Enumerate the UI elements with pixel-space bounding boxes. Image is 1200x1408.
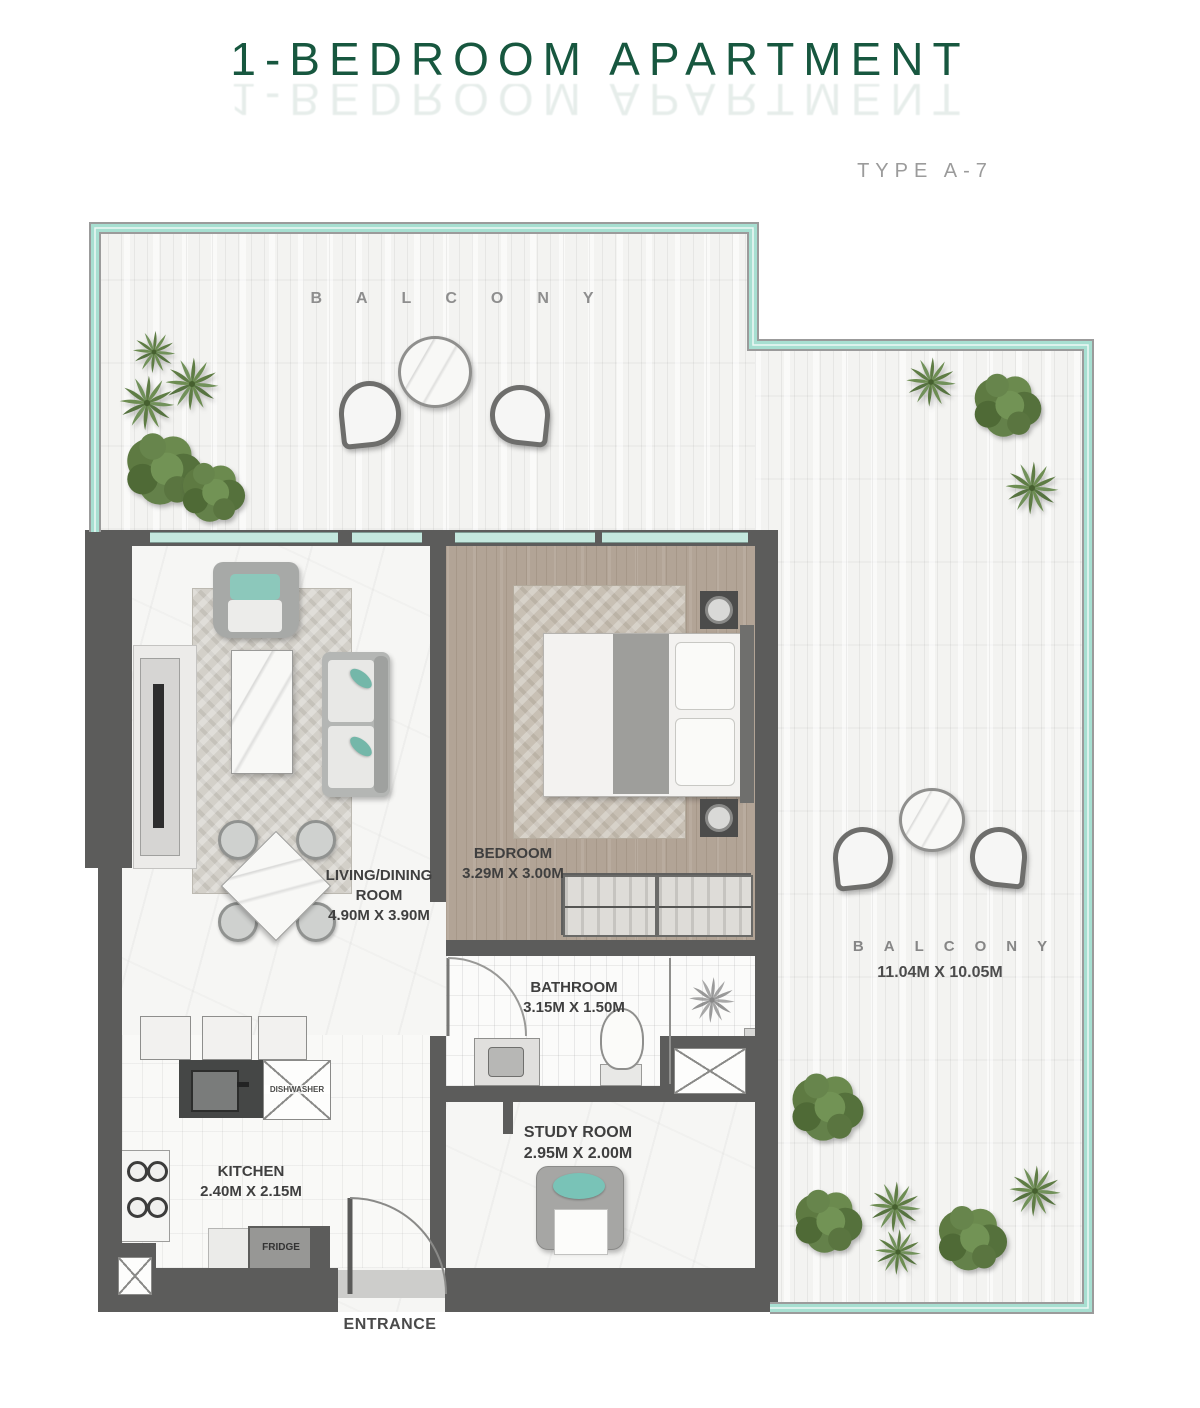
kitchen-sink bbox=[191, 1070, 239, 1112]
balcony-top-label: BALCONY bbox=[235, 290, 669, 308]
armchair-cushion bbox=[230, 574, 280, 600]
floor-plan-page: 1-BEDROOM APARTMENT 1-BEDROOM APARTMENT … bbox=[0, 0, 1200, 1408]
plant-palm bbox=[903, 354, 959, 410]
wardrobe-panel bbox=[657, 875, 753, 937]
study-room-name: STUDY ROOM bbox=[524, 1124, 632, 1141]
wall-cabinet bbox=[140, 1016, 191, 1060]
nightstand bbox=[700, 799, 738, 837]
wardrobe bbox=[561, 873, 751, 935]
living-dining-label: LIVING/DINING ROOM 4.90M X 3.90M bbox=[323, 866, 435, 926]
plant-palm bbox=[1002, 458, 1062, 518]
lamp bbox=[705, 804, 733, 832]
window-bedroom-2 bbox=[602, 532, 748, 543]
page-title: 1-BEDROOM APARTMENT bbox=[0, 32, 1200, 86]
bed-pillow bbox=[675, 718, 735, 786]
sink bbox=[488, 1047, 524, 1077]
dishwasher: DISHWASHER bbox=[263, 1060, 331, 1120]
kitchen-dimensions: 2.40M X 2.15M bbox=[200, 1183, 302, 1200]
page-title-reflection: 1-BEDROOM APARTMENT bbox=[0, 84, 1200, 126]
armchair-seat bbox=[228, 600, 282, 632]
wall-left-upper bbox=[85, 530, 132, 868]
window-living-door bbox=[352, 532, 422, 543]
living-dining-dimensions: 4.90M X 3.90M bbox=[328, 907, 430, 924]
vanity bbox=[474, 1038, 540, 1086]
window-living bbox=[150, 532, 338, 543]
desk bbox=[536, 1166, 624, 1250]
bed-pillow bbox=[675, 642, 735, 710]
tv-screen bbox=[153, 684, 164, 828]
wall-divider-lower bbox=[430, 1036, 446, 1268]
entrance-label: ENTRANCE bbox=[338, 1314, 442, 1335]
service-shaft bbox=[674, 1048, 746, 1094]
bed-blanket bbox=[613, 634, 669, 794]
dishwasher-label: DISHWASHER bbox=[264, 1085, 330, 1094]
plant-bush bbox=[780, 1060, 876, 1158]
kitchen-label: KITCHEN 2.40M X 2.15M bbox=[200, 1162, 302, 1202]
wall-bedroom-bathroom bbox=[446, 940, 758, 956]
kitchen-sink-unit bbox=[179, 1060, 263, 1118]
toilet bbox=[596, 1008, 644, 1086]
bedroom-label: BEDROOM 3.29M X 3.00M bbox=[446, 844, 580, 884]
study-room-label: STUDY ROOM 2.95M X 2.00M bbox=[498, 1122, 658, 1165]
burner bbox=[127, 1161, 148, 1182]
plant-palm bbox=[1004, 1162, 1066, 1220]
counter bbox=[208, 1228, 250, 1270]
desk-chair bbox=[553, 1173, 605, 1199]
bathroom-dimensions: 3.15M X 1.50M bbox=[523, 999, 625, 1016]
bathroom-name: BATHROOM bbox=[530, 979, 617, 996]
faucet bbox=[237, 1082, 249, 1087]
bedroom-name: BEDROOM bbox=[474, 845, 552, 862]
bedroom-dimensions: 3.29M X 3.00M bbox=[462, 865, 564, 882]
wardrobe-panel bbox=[563, 875, 657, 937]
armchair bbox=[213, 562, 299, 638]
lamp bbox=[705, 596, 733, 624]
balcony-table-right bbox=[899, 788, 965, 852]
burner bbox=[127, 1197, 148, 1218]
burner bbox=[147, 1197, 168, 1218]
burner bbox=[147, 1161, 168, 1182]
wall-bottom-right bbox=[445, 1268, 758, 1312]
wall-right bbox=[755, 530, 778, 1312]
dining-chair bbox=[296, 820, 336, 860]
nightstand bbox=[700, 591, 738, 629]
entrance-threshold bbox=[338, 1270, 445, 1298]
living-dining-line1: LIVING/DINING bbox=[326, 867, 433, 884]
fridge-label: FRIDGE bbox=[250, 1242, 312, 1253]
bathroom-label: BATHROOM 3.15M X 1.50M bbox=[498, 978, 650, 1018]
bed bbox=[543, 633, 742, 797]
balcony-table bbox=[398, 336, 472, 408]
wall-cabinet bbox=[202, 1016, 252, 1060]
coffee-table bbox=[231, 650, 293, 774]
plan-type-label: TYPE A-7 bbox=[830, 160, 1020, 183]
plant-bush bbox=[168, 452, 260, 536]
service-shaft-corner bbox=[118, 1257, 152, 1295]
sofa bbox=[322, 652, 390, 797]
plant-palm bbox=[872, 1226, 924, 1278]
stove bbox=[121, 1150, 170, 1242]
fridge: FRIDGE bbox=[248, 1226, 314, 1272]
plant-bush bbox=[784, 1178, 874, 1268]
balcony-right-label: BALCONY bbox=[810, 938, 1090, 955]
wall-cabinet bbox=[258, 1016, 307, 1060]
wall-stub-fridge bbox=[310, 1226, 330, 1270]
wall-divider-upper bbox=[430, 530, 446, 902]
plant-bush bbox=[962, 362, 1054, 452]
desk-paper bbox=[554, 1209, 608, 1255]
study-room-dimensions: 2.95M X 2.00M bbox=[524, 1145, 633, 1162]
sofa-back bbox=[374, 656, 388, 793]
headboard bbox=[740, 625, 754, 803]
sofa-seat bbox=[328, 726, 374, 788]
kitchen-name: KITCHEN bbox=[218, 1163, 285, 1180]
balcony-right-dimensions: 11.04M X 10.05M bbox=[810, 962, 1070, 983]
living-dining-line2: ROOM bbox=[356, 887, 403, 904]
window-bedroom bbox=[455, 532, 595, 543]
